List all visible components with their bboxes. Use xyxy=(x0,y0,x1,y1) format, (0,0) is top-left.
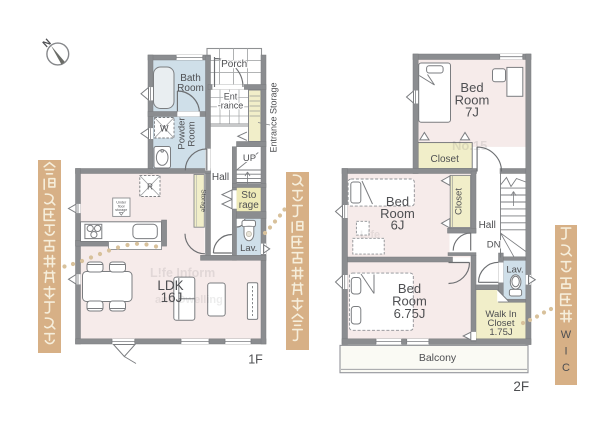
svg-text:Hall: Hall xyxy=(212,172,229,183)
svg-text:Lav.: Lav. xyxy=(506,265,523,276)
svg-text:storage: storage xyxy=(115,208,127,212)
svg-text:7J: 7J xyxy=(465,105,479,120)
svg-text:L!fe Inform: L!fe Inform xyxy=(150,266,215,280)
svg-text:1.75J: 1.75J xyxy=(489,327,512,338)
svg-text:Balcony: Balcony xyxy=(419,352,457,364)
svg-text:W: W xyxy=(561,329,572,341)
svg-text:rage: rage xyxy=(239,200,259,211)
svg-text:Lav.: Lav. xyxy=(240,243,257,254)
svg-text:I: I xyxy=(564,346,567,358)
svg-text:2F: 2F xyxy=(513,379,529,394)
svg-text:Porch: Porch xyxy=(221,59,247,70)
svg-text:Storage: Storage xyxy=(200,189,207,212)
svg-text:Closet: Closet xyxy=(454,188,465,215)
svg-text:W: W xyxy=(160,124,169,134)
svg-text:No.15: No.15 xyxy=(452,138,487,153)
svg-text:Entrance Storage: Entrance Storage xyxy=(269,82,279,152)
svg-text:Room: Room xyxy=(187,121,198,146)
svg-text:C: C xyxy=(562,362,570,374)
svg-text:UP: UP xyxy=(243,153,256,164)
svg-text:6.75J: 6.75J xyxy=(394,306,426,321)
svg-text:6J: 6J xyxy=(391,218,405,233)
svg-text:and Dwelling: and Dwelling xyxy=(155,294,223,306)
svg-text:Hall: Hall xyxy=(479,220,496,231)
svg-text:L!fe: L!fe xyxy=(360,229,380,241)
svg-text:-rance: -rance xyxy=(218,101,244,111)
svg-text:DN: DN xyxy=(487,240,501,251)
svg-text:Closet: Closet xyxy=(431,154,460,165)
svg-text:1F: 1F xyxy=(248,353,263,367)
svg-text:R: R xyxy=(147,183,153,192)
svg-text:Room: Room xyxy=(177,83,204,94)
